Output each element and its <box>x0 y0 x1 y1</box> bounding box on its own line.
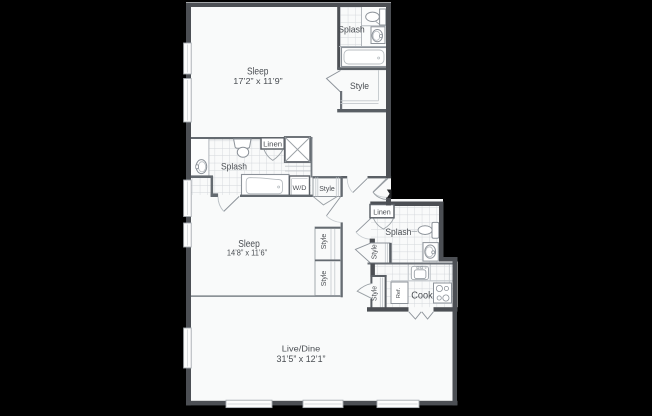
svg-text:W/D: W/D <box>293 185 307 192</box>
svg-text:17’2” x 11’9”: 17’2” x 11’9” <box>233 76 283 86</box>
svg-text:Style: Style <box>319 234 328 250</box>
svg-text:Ref.: Ref. <box>396 287 402 298</box>
svg-text:Live/Dine: Live/Dine <box>282 345 321 354</box>
svg-text:14’8” x 11’6”: 14’8” x 11’6” <box>227 247 268 257</box>
svg-text:Splash: Splash <box>338 23 365 34</box>
svg-text:31’5” x 12’1”: 31’5” x 12’1” <box>277 354 326 364</box>
svg-text:Style: Style <box>319 271 328 287</box>
svg-text:Style: Style <box>319 184 335 193</box>
svg-text:Cook: Cook <box>411 291 433 302</box>
svg-text:Style: Style <box>350 81 369 91</box>
svg-text:Splash: Splash <box>385 227 411 238</box>
svg-text:Linen: Linen <box>263 140 282 149</box>
svg-text:Style: Style <box>370 244 379 259</box>
svg-text:Splash: Splash <box>221 161 247 172</box>
svg-text:Linen: Linen <box>373 208 391 217</box>
svg-text:Style: Style <box>369 286 378 301</box>
